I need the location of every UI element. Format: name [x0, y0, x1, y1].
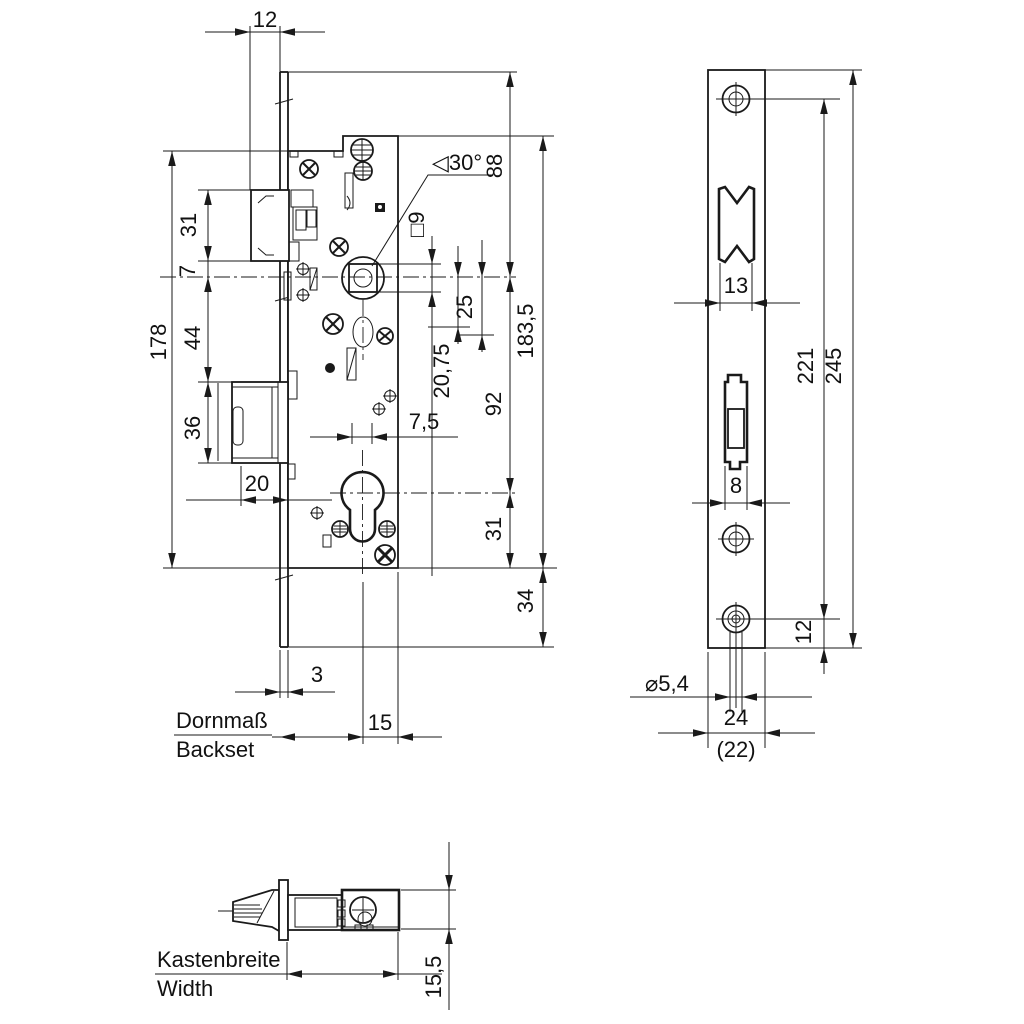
screw-hole-bottom — [716, 602, 840, 712]
label-backset-en: Backset — [176, 737, 254, 762]
dim-spindle-square: □9 — [404, 211, 429, 237]
screw-icon — [332, 521, 348, 537]
dim-axis-to-pin: 20,75 — [429, 343, 454, 398]
spring-pin-icon — [354, 162, 372, 180]
side-latch-bolt — [233, 890, 279, 931]
dim-faceplate-width-alt: (22) — [716, 737, 755, 762]
dim-case-left-height: 178 — [146, 324, 171, 361]
dim-axis-to-back: 15 — [368, 710, 392, 735]
side-case — [288, 890, 399, 930]
lock-technical-drawing-page: 12 31 7 178 44 36 20 3 Dornmaß Backset 1… — [0, 0, 1024, 1024]
label-width-de: Kastenbreite — [157, 947, 281, 972]
dim-case-thickness: 15,5 — [421, 956, 446, 999]
screw-icon — [379, 521, 395, 537]
dim-faceplate-thickness: 3 — [311, 662, 323, 687]
dim-faceplate-length: 245 — [821, 348, 846, 385]
dim-latch-to-axis: 7 — [175, 265, 200, 277]
spring-pin-icon — [351, 139, 373, 161]
dim-latch-height: 31 — [176, 213, 201, 237]
dim-axis-to-bolt: 44 — [180, 326, 205, 350]
dim-axis-to-cylinder: 92 — [481, 392, 506, 416]
label-backset-de: Dornmaß — [176, 708, 268, 733]
dim-bottom-extension: 34 — [513, 589, 538, 613]
dim-axis-to-oval: 25 — [452, 295, 477, 319]
dim-cylinder-to-bottom: 31 — [481, 517, 506, 541]
front-view: 12 31 7 178 44 36 20 3 Dornmaß Backset 1… — [146, 7, 557, 762]
label-width-en: Width — [157, 976, 213, 1001]
dim-hole-distance: 221 — [793, 348, 818, 385]
dim-bolt-opening: 8 — [730, 473, 742, 498]
side-faceplate — [279, 880, 288, 940]
dim-angle: ◁30° — [432, 150, 482, 175]
faceplate-plate — [708, 70, 765, 648]
dim-bolt-height: 36 — [180, 416, 205, 440]
dim-faceplate-width: 24 — [724, 705, 748, 730]
dim-case-height: 183,5 — [513, 303, 538, 358]
dim-hole-to-end: 12 — [791, 620, 816, 644]
dim-axis-offset: 7,5 — [409, 409, 440, 434]
side-view: Kastenbreite Width 15,5 — [155, 842, 456, 1010]
dim-bolt-throw: 20 — [245, 471, 269, 496]
dim-top-offset: 12 — [253, 7, 277, 32]
dim-latch-opening: 13 — [724, 273, 748, 298]
dim-faceplate-top-to-axis: 88 — [482, 154, 507, 178]
technical-drawing: 12 31 7 178 44 36 20 3 Dornmaß Backset 1… — [0, 0, 1024, 1024]
faceplate-view: 13 8 ⌀5,4 24 (22) 221 245 12 — [630, 70, 862, 762]
dim-screw-hole-dia: ⌀5,4 — [645, 671, 689, 696]
